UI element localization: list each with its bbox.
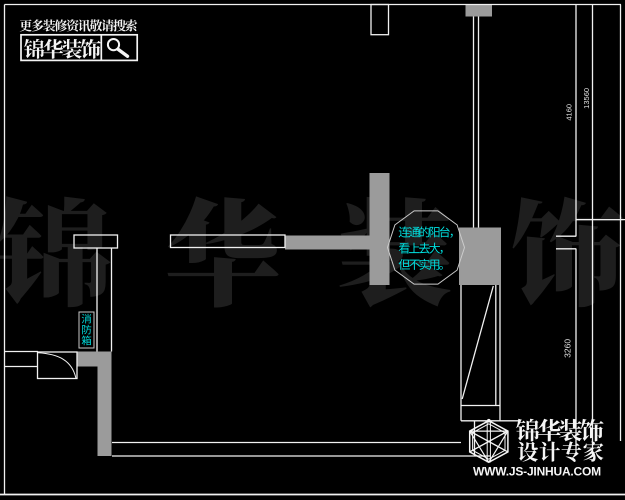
- svg-text:13560: 13560: [582, 88, 591, 109]
- svg-text:4160: 4160: [564, 104, 573, 121]
- svg-text:WWW.JS-JINHUA.COM: WWW.JS-JINHUA.COM: [473, 464, 601, 478]
- svg-text:3260: 3260: [563, 339, 573, 358]
